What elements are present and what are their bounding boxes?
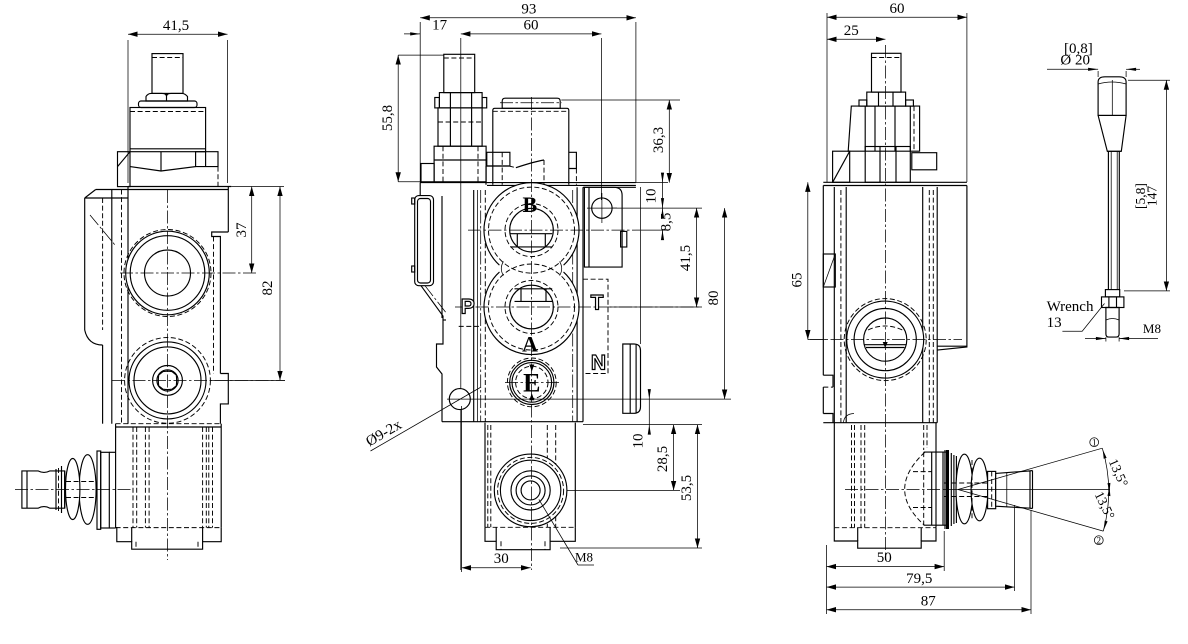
svg-text:41,5: 41,5 xyxy=(678,245,694,271)
svg-text:M8: M8 xyxy=(575,550,593,565)
svg-text:10: 10 xyxy=(631,434,647,449)
svg-text:65: 65 xyxy=(790,273,806,288)
svg-text:2: 2 xyxy=(1097,536,1102,546)
svg-text:8,5: 8,5 xyxy=(659,213,675,232)
svg-text:79,5: 79,5 xyxy=(906,571,932,587)
svg-text:A: A xyxy=(522,332,538,357)
svg-text:50: 50 xyxy=(877,550,892,566)
svg-text:60: 60 xyxy=(524,18,539,34)
svg-text:87: 87 xyxy=(921,594,937,610)
svg-text:17: 17 xyxy=(432,18,448,34)
svg-text:53,5: 53,5 xyxy=(679,475,695,501)
svg-text:10: 10 xyxy=(644,189,660,204)
svg-text:N: N xyxy=(591,352,606,375)
svg-text:60: 60 xyxy=(890,1,905,17)
svg-text:Ø 20: Ø 20 xyxy=(1060,53,1090,69)
svg-text:M8: M8 xyxy=(1143,321,1161,336)
svg-text:55,8: 55,8 xyxy=(380,105,396,131)
svg-text:147: 147 xyxy=(1145,186,1160,207)
svg-text:Ø9-2x: Ø9-2x xyxy=(363,417,405,450)
svg-text:Wrench: Wrench xyxy=(1047,299,1094,315)
svg-text:25: 25 xyxy=(844,23,859,39)
svg-text:30: 30 xyxy=(494,551,509,567)
svg-text:P: P xyxy=(461,296,475,319)
svg-text:36,3: 36,3 xyxy=(651,127,667,153)
svg-text:28,5: 28,5 xyxy=(655,446,671,472)
svg-text:1: 1 xyxy=(1092,438,1097,448)
svg-text:80: 80 xyxy=(706,291,722,306)
svg-text:37: 37 xyxy=(234,222,250,238)
svg-text:13: 13 xyxy=(1047,315,1062,331)
svg-text:82: 82 xyxy=(260,281,276,296)
svg-text:41,5: 41,5 xyxy=(163,18,189,34)
svg-text:13,5°: 13,5° xyxy=(1092,489,1118,522)
svg-text:T: T xyxy=(591,292,604,315)
svg-text:B: B xyxy=(523,192,538,217)
svg-text:93: 93 xyxy=(521,2,536,18)
